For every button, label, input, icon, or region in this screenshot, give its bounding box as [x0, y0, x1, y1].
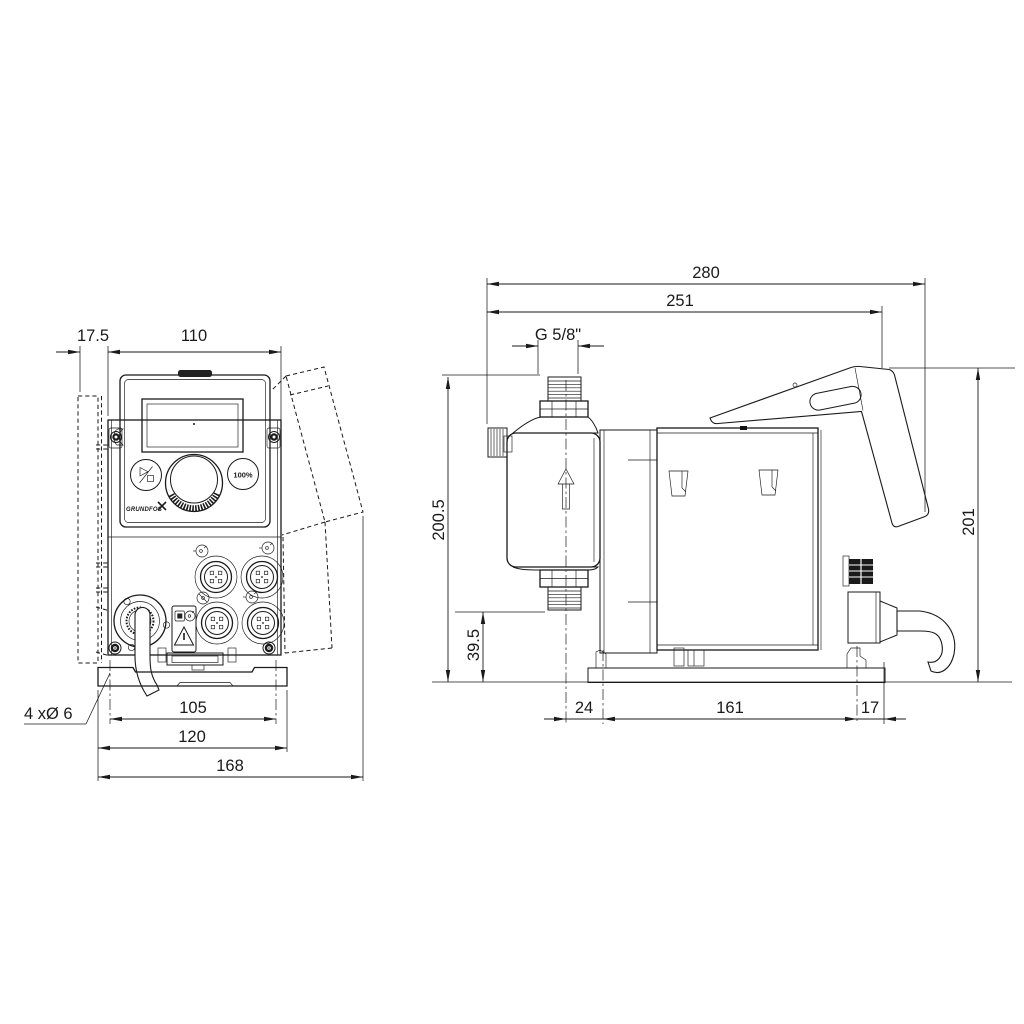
label-mounting-holes: 4 xØ 6 — [24, 705, 73, 723]
dim-201: 201 — [960, 508, 978, 536]
warning-label — [172, 606, 196, 652]
pump-housing-side — [600, 426, 821, 653]
front-view: 100% GRUNDFOS — [24, 327, 363, 781]
stop-icon — [148, 476, 154, 482]
front-dimensions: 17.5 110 105 120 168 4 xØ 6 — [24, 327, 363, 781]
dim-280: 280 — [692, 264, 720, 282]
housing-hooks — [669, 470, 778, 496]
power-cable — [897, 611, 955, 672]
m12-connector — [195, 556, 237, 598]
start-stop-button — [131, 460, 162, 491]
m12-connector — [241, 556, 283, 598]
side-dimensions: 280 251 G 5/8" 200.5 39.5 201 — [430, 264, 1015, 719]
dim-110: 110 — [181, 327, 207, 345]
dim-251: 251 — [666, 292, 694, 310]
air-bleed-knob — [488, 428, 512, 457]
logo-text: GRUNDFOS — [126, 507, 162, 513]
dim-17: 17 — [861, 699, 879, 717]
wall-bracket-hidden — [78, 396, 123, 663]
dim-168: 168 — [216, 757, 244, 775]
pump-dimension-drawing: 100% GRUNDFOS — [0, 0, 1024, 1024]
connector-sockets — [193, 542, 284, 644]
suction-valve — [513, 567, 598, 610]
dim-39-5: 39.5 — [465, 629, 483, 661]
discharge-valve — [540, 377, 588, 417]
dim-17-5: 17.5 — [77, 327, 109, 345]
open-cover-side — [710, 366, 929, 526]
control-panel: 100% GRUNDFOS — [120, 370, 270, 527]
hundred-percent-label: 100% — [233, 471, 253, 480]
dim-120: 120 — [178, 728, 206, 746]
click-wheel — [166, 455, 223, 512]
play-icon — [140, 468, 148, 477]
m12-connector — [196, 602, 238, 644]
dim-161: 161 — [716, 699, 744, 717]
label-circle-icon — [185, 611, 195, 621]
suction-tube — [135, 608, 159, 696]
pump-body-front — [108, 420, 281, 655]
suction-flange — [114, 595, 170, 696]
dim-g58: G 5/8" — [535, 326, 581, 344]
logo-mark — [158, 502, 166, 510]
display — [142, 399, 243, 452]
side-view: 280 251 G 5/8" 200.5 39.5 201 — [430, 264, 1015, 724]
panel-top-tab — [178, 370, 212, 377]
drawing-canvas: 100% GRUNDFOS — [0, 0, 1024, 1024]
hundred-percent-button: 100% — [228, 459, 259, 490]
dim-200-5: 200.5 — [430, 499, 448, 540]
open-cover-hidden — [272, 367, 363, 653]
brand-logo: GRUNDFOS — [126, 502, 166, 513]
dim-24: 24 — [575, 699, 593, 717]
dim-105: 105 — [179, 699, 207, 717]
dosing-head — [488, 377, 600, 724]
